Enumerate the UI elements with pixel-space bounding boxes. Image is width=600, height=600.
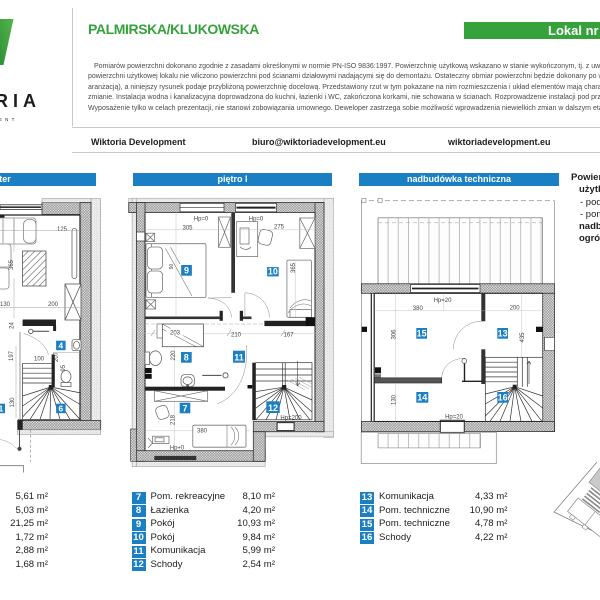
svg-text:207: 207: [54, 351, 60, 362]
svg-text:306: 306: [392, 329, 398, 340]
svg-text:8: 8: [184, 353, 189, 363]
svg-text:380: 380: [197, 429, 208, 435]
svg-text:Hp=200: Hp=200: [280, 416, 302, 422]
svg-text:Hp=20: Hp=20: [434, 298, 453, 304]
svg-text:13: 13: [498, 329, 508, 339]
svg-text:Hp=20: Hp=20: [445, 415, 464, 421]
svg-text:15: 15: [417, 329, 427, 339]
svg-text:200: 200: [48, 302, 59, 308]
svg-text:200: 200: [510, 306, 521, 312]
svg-text:365: 365: [9, 259, 15, 270]
svg-text:125: 125: [57, 227, 68, 233]
svg-text:9: 9: [184, 266, 189, 276]
svg-text:218: 218: [171, 414, 177, 425]
svg-text:4: 4: [58, 340, 63, 350]
svg-text:24: 24: [10, 322, 16, 329]
svg-text:Hp+0: Hp+0: [170, 445, 185, 451]
svg-text:14: 14: [417, 393, 427, 403]
svg-text:365: 365: [291, 262, 297, 273]
svg-text:95: 95: [61, 364, 67, 371]
svg-text:220: 220: [171, 350, 177, 361]
svg-text:7: 7: [182, 403, 187, 413]
svg-text:203: 203: [170, 331, 181, 337]
svg-text:1: 1: [0, 403, 4, 413]
svg-text:10: 10: [268, 267, 278, 277]
svg-text:435: 435: [520, 332, 526, 343]
svg-text:167: 167: [284, 332, 295, 338]
svg-text:130: 130: [10, 397, 16, 408]
svg-text:16: 16: [498, 393, 508, 403]
svg-text:12: 12: [268, 403, 278, 413]
svg-text:130: 130: [392, 394, 398, 405]
svg-text:11: 11: [234, 352, 244, 362]
svg-text:210: 210: [231, 332, 242, 338]
svg-text:Hp=0: Hp=0: [249, 216, 264, 222]
svg-text:Hp=0: Hp=0: [194, 216, 209, 222]
svg-text:197: 197: [9, 350, 15, 361]
svg-text:6: 6: [58, 403, 63, 413]
svg-text:130: 130: [0, 302, 11, 308]
svg-text:90: 90: [169, 264, 175, 270]
svg-text:380: 380: [413, 306, 424, 312]
svg-text:100: 100: [34, 357, 45, 363]
svg-text:305: 305: [182, 226, 193, 232]
